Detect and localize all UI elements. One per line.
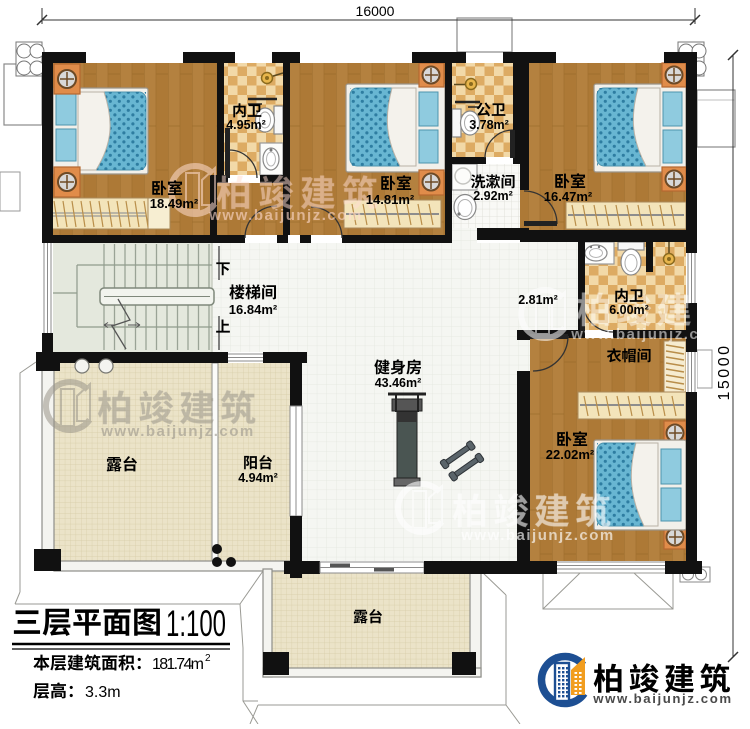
svg-text:4.94m²: 4.94m² — [238, 471, 278, 485]
svg-text:2: 2 — [205, 653, 211, 664]
svg-text:2.81m²: 2.81m² — [518, 293, 558, 307]
svg-text:4.95m²: 4.95m² — [226, 118, 266, 132]
svg-text:www.baijunjz.com: www.baijunjz.com — [208, 207, 362, 224]
svg-text:3.3m: 3.3m — [85, 684, 121, 701]
svg-text:22.02m²: 22.02m² — [546, 447, 595, 462]
svg-text:16.47m²: 16.47m² — [544, 189, 593, 204]
svg-text:181.74m: 181.74m — [152, 656, 204, 673]
svg-text:14.81m²: 14.81m² — [366, 192, 415, 207]
svg-text:www.baijunjz.com: www.baijunjz.com — [100, 423, 254, 440]
svg-text:2.92m²: 2.92m² — [473, 189, 513, 203]
svg-text:www.baijunjz.com: www.baijunjz.com — [570, 326, 724, 343]
svg-text:15000: 15000 — [716, 344, 733, 401]
svg-text:16.84m²: 16.84m² — [229, 302, 278, 317]
svg-text:43.46m²: 43.46m² — [375, 376, 422, 390]
svg-text:6.00m²: 6.00m² — [609, 303, 649, 317]
svg-text:18.49m²: 18.49m² — [150, 196, 199, 211]
svg-text:16000: 16000 — [356, 3, 395, 19]
svg-text:www.baijunjz.com: www.baijunjz.com — [460, 527, 614, 544]
svg-text:1:100: 1:100 — [166, 603, 226, 644]
svg-text:www.baijunjz.com: www.baijunjz.com — [592, 691, 732, 706]
svg-text:3.78m²: 3.78m² — [469, 118, 509, 132]
